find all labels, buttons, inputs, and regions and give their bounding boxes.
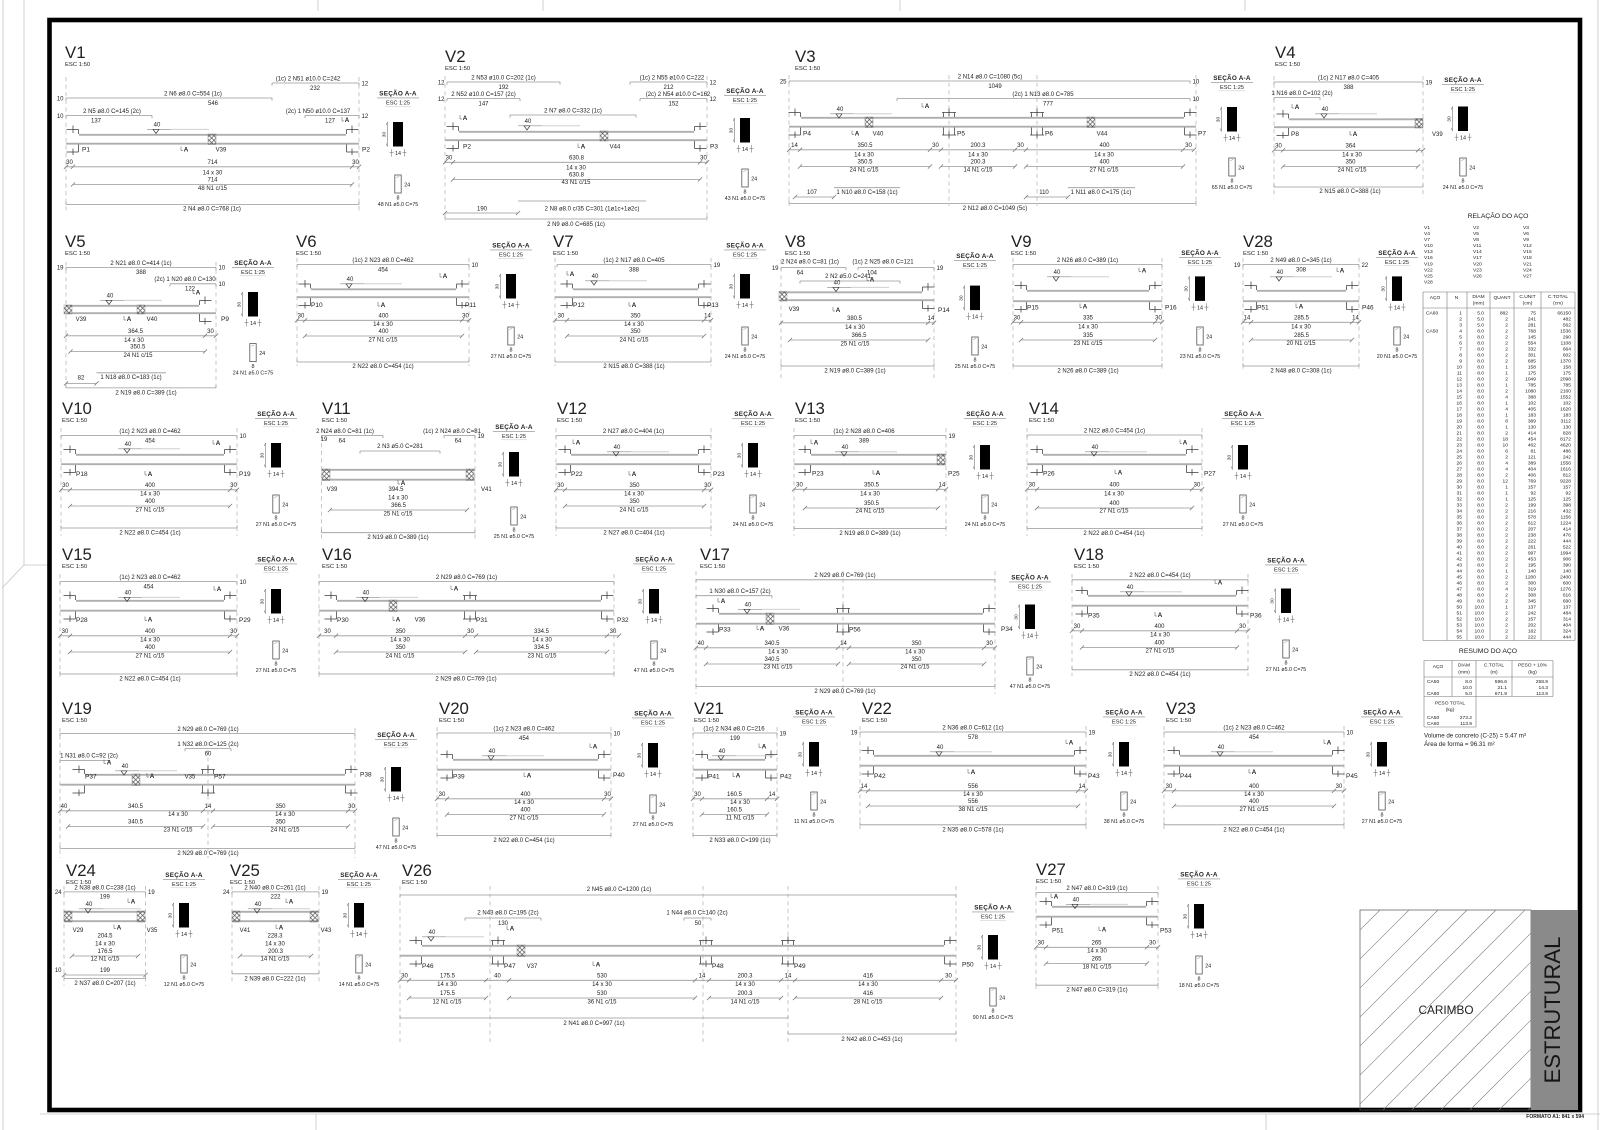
svg-text:14 x 30: 14 x 30	[437, 982, 457, 988]
svg-text:P5: P5	[957, 131, 965, 138]
svg-text:14 N1 ø5.0 C=75: 14 N1 ø5.0 C=75	[339, 982, 380, 988]
svg-text:P18: P18	[76, 471, 88, 478]
svg-text:160.5: 160.5	[727, 808, 743, 814]
svg-text:20: 20	[1457, 425, 1463, 431]
svg-text:A: A	[184, 147, 189, 154]
svg-text:714: 714	[207, 160, 218, 166]
svg-text:2 N29 ø8.0 C=769 (1c): 2 N29 ø8.0 C=769 (1c)	[435, 677, 496, 683]
svg-text:A: A	[762, 744, 767, 751]
svg-text:8: 8	[183, 976, 186, 982]
svg-text:324: 324	[1563, 629, 1571, 635]
svg-text:A: A	[1295, 104, 1300, 111]
svg-text:350: 350	[911, 641, 922, 647]
svg-text:228.3: 228.3	[267, 934, 283, 940]
svg-text:27 N1 ø5.0 C=75: 27 N1 ø5.0 C=75	[1362, 819, 1403, 825]
svg-text:CA50: CA50	[1427, 679, 1440, 685]
svg-text:334.5: 334.5	[534, 629, 550, 635]
svg-text:30: 30	[637, 753, 643, 759]
svg-text:43 N1 c/15: 43 N1 c/15	[561, 180, 591, 186]
svg-text:2: 2	[1505, 389, 1508, 395]
svg-text:(mm): (mm)	[1458, 670, 1470, 676]
svg-text:24: 24	[1205, 964, 1211, 970]
svg-text:4620: 4620	[1560, 443, 1571, 449]
svg-text:P39: P39	[453, 774, 465, 781]
svg-text:12: 12	[1503, 479, 1509, 485]
svg-text:(1c) 2 N23 ø8.0 C=462: (1c) 2 N23 ø8.0 C=462	[352, 258, 414, 264]
svg-text:2: 2	[1505, 335, 1508, 341]
svg-text:1: 1	[1459, 311, 1462, 317]
svg-text:41: 41	[1457, 551, 1463, 557]
svg-text:A: A	[1142, 268, 1147, 275]
svg-text:10: 10	[57, 114, 64, 120]
svg-text:2: 2	[1505, 473, 1508, 479]
svg-text:30: 30	[1275, 144, 1282, 150]
svg-text:24 N1 ø5.0 C=75: 24 N1 ø5.0 C=75	[233, 371, 274, 377]
svg-text:V14: V14	[1473, 249, 1482, 255]
svg-text:23 N1 c/15: 23 N1 c/15	[763, 665, 793, 671]
svg-text:QUANT: QUANT	[1493, 295, 1510, 301]
svg-text:30: 30	[729, 128, 735, 134]
svg-text:A: A	[527, 773, 532, 780]
svg-text:2 N35 ø8.0 C=578 (1c): 2 N35 ø8.0 C=578 (1c)	[942, 828, 1003, 834]
svg-text:P8: P8	[1291, 131, 1299, 138]
svg-text:414: 414	[1528, 431, 1536, 437]
svg-text:V22: V22	[1424, 267, 1433, 273]
svg-text:285.5: 285.5	[1294, 333, 1310, 339]
svg-text:158: 158	[1528, 365, 1536, 371]
svg-text:14: 14	[1079, 784, 1086, 790]
svg-text:232: 232	[310, 86, 321, 92]
svg-text:V37: V37	[527, 964, 538, 970]
svg-text:P46: P46	[422, 963, 434, 970]
svg-text:1536: 1536	[1560, 329, 1571, 335]
svg-text:400: 400	[1099, 160, 1110, 166]
svg-text:19: 19	[321, 437, 328, 443]
svg-text:14.3: 14.3	[1538, 685, 1548, 691]
svg-text:8: 8	[652, 816, 655, 822]
svg-text:578: 578	[968, 735, 979, 741]
svg-text:14: 14	[1027, 634, 1033, 640]
svg-text:SEÇÃO A-A: SEÇÃO A-A	[966, 409, 1004, 418]
svg-text:ESC 1:50: ESC 1:50	[322, 564, 348, 570]
svg-text:10: 10	[1457, 365, 1463, 371]
svg-text:30: 30	[1270, 598, 1276, 604]
svg-text:157: 157	[1563, 485, 1571, 491]
svg-text:V24: V24	[66, 861, 96, 880]
svg-text:24: 24	[1206, 335, 1212, 341]
svg-text:400: 400	[145, 483, 156, 489]
svg-text:P2: P2	[362, 147, 370, 154]
svg-text:10.0: 10.0	[1474, 605, 1484, 611]
svg-text:30: 30	[352, 160, 359, 166]
svg-text:366.5: 366.5	[391, 503, 407, 509]
svg-text:2098: 2098	[1560, 377, 1571, 383]
svg-text:ESC 1:25: ESC 1:25	[1187, 882, 1211, 888]
svg-text:ESC 1:50: ESC 1:50	[62, 718, 88, 724]
svg-text:SEÇÃO A-A: SEÇÃO A-A	[1213, 73, 1251, 82]
svg-text:CA50: CA50	[1426, 329, 1439, 335]
svg-text:14: 14	[650, 772, 656, 778]
svg-text:40: 40	[429, 930, 436, 936]
svg-text:ESC 1:25: ESC 1:25	[733, 253, 757, 259]
svg-text:V15: V15	[62, 545, 92, 564]
svg-text:A: A	[1102, 927, 1107, 934]
svg-text:A: A	[1252, 769, 1257, 776]
svg-text:24: 24	[1292, 648, 1298, 654]
svg-text:V23: V23	[1473, 267, 1482, 273]
svg-text:207: 207	[1528, 527, 1536, 533]
svg-text:8: 8	[1462, 179, 1465, 185]
svg-text:107: 107	[807, 190, 818, 196]
svg-text:A: A	[593, 744, 598, 751]
svg-text:147: 147	[478, 101, 489, 107]
svg-text:10.0: 10.0	[1462, 685, 1472, 691]
svg-text:10.0: 10.0	[1474, 611, 1484, 617]
svg-text:14: 14	[273, 472, 279, 478]
svg-text:SEÇÃO A-A: SEÇÃO A-A	[495, 422, 533, 431]
svg-text:8: 8	[395, 839, 398, 845]
svg-text:P4: P4	[803, 131, 811, 138]
svg-text:40: 40	[837, 107, 844, 113]
svg-text:P22: P22	[571, 471, 583, 478]
svg-text:602: 602	[1563, 353, 1571, 359]
svg-text:2 N14 ø8.0 C=1080 (5c): 2 N14 ø8.0 C=1080 (5c)	[958, 74, 1023, 80]
svg-text:ESC 1:25: ESC 1:25	[641, 721, 665, 727]
svg-text:664: 664	[1563, 347, 1571, 353]
svg-text:28 N1 c/15: 28 N1 c/15	[853, 1000, 883, 1006]
svg-text:1049: 1049	[988, 84, 1002, 90]
svg-text:2 N49 ø8.0 C=345 (1c): 2 N49 ø8.0 C=345 (1c)	[1270, 258, 1331, 264]
svg-text:24: 24	[190, 963, 196, 969]
svg-text:V35: V35	[185, 775, 196, 781]
svg-text:152: 152	[668, 101, 679, 107]
svg-text:400: 400	[145, 629, 156, 635]
svg-text:554: 554	[1528, 341, 1536, 347]
svg-text:P36: P36	[1250, 613, 1262, 620]
svg-text:40: 40	[1054, 270, 1061, 276]
svg-text:ESC 1:25: ESC 1:25	[502, 434, 526, 440]
svg-text:V1: V1	[65, 43, 86, 62]
svg-text:A: A	[345, 117, 350, 124]
svg-text:222: 222	[1528, 635, 1536, 641]
svg-text:2: 2	[1505, 341, 1508, 347]
svg-text:49: 49	[1457, 599, 1463, 605]
svg-text:24: 24	[751, 335, 757, 341]
svg-text:400: 400	[1249, 799, 1260, 805]
svg-text:1: 1	[1505, 425, 1508, 431]
svg-text:454: 454	[378, 267, 389, 273]
svg-text:V5: V5	[1473, 231, 1479, 237]
svg-text:82: 82	[78, 376, 85, 382]
svg-text:290: 290	[1563, 335, 1571, 341]
svg-text:P53: P53	[1160, 928, 1172, 935]
svg-text:A: A	[289, 899, 294, 906]
svg-text:14: 14	[1460, 136, 1466, 142]
svg-text:454: 454	[519, 736, 530, 742]
svg-text:14: 14	[356, 932, 362, 938]
svg-text:1616: 1616	[1560, 467, 1571, 473]
svg-text:45: 45	[1457, 575, 1463, 581]
svg-text:2: 2	[1505, 527, 1508, 533]
svg-text:769: 769	[1528, 479, 1536, 485]
svg-text:ESC 1:25: ESC 1:25	[1385, 260, 1409, 266]
svg-text:ESC 1:50: ESC 1:50	[694, 718, 720, 724]
svg-text:(1c) 2 N17 ø8.0 C=405: (1c) 2 N17 ø8.0 C=405	[1318, 75, 1380, 81]
svg-text:A: A	[1353, 131, 1358, 138]
svg-text:453: 453	[1528, 557, 1536, 563]
svg-text:2160: 2160	[1560, 389, 1571, 395]
svg-text:24: 24	[659, 803, 665, 809]
svg-text:V1: V1	[1424, 225, 1430, 231]
svg-text:10.0: 10.0	[1474, 617, 1484, 623]
svg-text:261: 261	[1528, 545, 1536, 551]
svg-text:8: 8	[1123, 813, 1126, 819]
svg-text:30: 30	[62, 483, 69, 489]
svg-text:2: 2	[1505, 599, 1508, 605]
svg-text:30: 30	[1239, 624, 1246, 630]
svg-text:24 N1 c/15: 24 N1 c/15	[123, 353, 153, 359]
svg-text:8: 8	[752, 516, 755, 522]
svg-text:2: 2	[1505, 377, 1508, 383]
svg-text:42: 42	[1457, 557, 1463, 563]
svg-text:8.0: 8.0	[1477, 521, 1484, 527]
svg-text:137: 137	[1563, 605, 1571, 611]
svg-text:1 N10 ø8.0 C=158 (1c): 1 N10 ø8.0 C=158 (1c)	[836, 190, 897, 196]
svg-text:40: 40	[494, 974, 501, 980]
svg-text:10: 10	[219, 266, 226, 272]
svg-text:CA60: CA60	[1427, 721, 1440, 727]
svg-text:30: 30	[1166, 784, 1173, 790]
svg-text:P34: P34	[1001, 626, 1013, 633]
svg-text:ESC 1:25: ESC 1:25	[347, 882, 371, 888]
svg-text:36 N1 c/15: 36 N1 c/15	[587, 1000, 617, 1006]
svg-text:30: 30	[796, 483, 803, 489]
svg-text:SEÇÃO A-A: SEÇÃO A-A	[1267, 556, 1305, 565]
svg-text:V13: V13	[1424, 249, 1433, 255]
svg-text:A: A	[463, 115, 468, 122]
svg-text:10: 10	[472, 263, 479, 269]
svg-text:SEÇÃO A-A: SEÇÃO A-A	[165, 870, 203, 879]
svg-text:2 N26 ø8.0 C=389 (1c): 2 N26 ø8.0 C=389 (1c)	[1057, 258, 1118, 264]
svg-text:CA60: CA60	[1426, 311, 1439, 317]
svg-text:2 N19 ø8.0 C=389 (1c): 2 N19 ø8.0 C=389 (1c)	[839, 531, 900, 537]
svg-text:ESC 1:25: ESC 1:25	[384, 742, 408, 748]
svg-text:V14: V14	[1029, 399, 1059, 418]
svg-text:A: A	[131, 899, 136, 906]
svg-text:(2c) 2 N54 ø10.0 C=162: (2c) 2 N54 ø10.0 C=162	[646, 92, 711, 98]
svg-text:10.0: 10.0	[1474, 635, 1484, 641]
svg-text:50: 50	[1457, 605, 1463, 611]
svg-text:19: 19	[772, 266, 779, 272]
svg-text:24: 24	[223, 890, 230, 896]
svg-text:12 N1 ø5.0 C=75: 12 N1 ø5.0 C=75	[164, 982, 205, 988]
svg-text:8.0: 8.0	[1477, 359, 1484, 365]
svg-text:P3: P3	[710, 144, 718, 151]
svg-text:14 x 30: 14 x 30	[845, 325, 865, 331]
svg-text:630.8: 630.8	[569, 156, 585, 162]
svg-text:2: 2	[1505, 353, 1508, 359]
svg-text:P42: P42	[874, 773, 886, 780]
svg-text:ESC 1:25: ESC 1:25	[172, 882, 196, 888]
svg-text:ESC 1:50: ESC 1:50	[65, 62, 91, 68]
svg-text:30: 30	[604, 792, 611, 798]
svg-text:SEÇÃO A-A: SEÇÃO A-A	[340, 870, 378, 879]
svg-text:14: 14	[651, 618, 657, 624]
svg-text:8: 8	[1231, 179, 1234, 185]
svg-text:14: 14	[840, 641, 847, 647]
svg-text:30: 30	[638, 599, 644, 605]
svg-text:23 N1 ø5.0 C=75: 23 N1 ø5.0 C=75	[1180, 354, 1221, 360]
svg-text:40: 40	[1277, 270, 1284, 276]
svg-text:12: 12	[362, 81, 369, 87]
svg-text:P23: P23	[812, 471, 824, 478]
svg-text:2 N40 ø8.0 C=261 (1c): 2 N40 ø8.0 C=261 (1c)	[244, 885, 305, 891]
svg-text:10: 10	[1503, 443, 1509, 449]
svg-text:14 x 30: 14 x 30	[1150, 633, 1170, 639]
svg-text:30: 30	[700, 156, 707, 162]
svg-text:8.0: 8.0	[1477, 545, 1484, 551]
svg-text:400: 400	[145, 645, 156, 651]
svg-text:314: 314	[1563, 617, 1571, 623]
svg-text:30: 30	[1038, 941, 1045, 947]
svg-text:24 N1 ø5.0 C=75: 24 N1 ø5.0 C=75	[1443, 185, 1484, 191]
svg-text:8.0: 8.0	[1477, 563, 1484, 569]
svg-text:8: 8	[1285, 661, 1288, 667]
svg-text:23 N1 c/15: 23 N1 c/15	[163, 828, 193, 834]
svg-text:5: 5	[1459, 335, 1462, 341]
svg-text:27 N1 c/15: 27 N1 c/15	[1089, 168, 1119, 174]
svg-text:ESTRUTURAL: ESTRUTURAL	[1540, 937, 1565, 1084]
svg-text:(1c) 2 N28 ø8.0 C=406: (1c) 2 N28 ø8.0 C=406	[833, 429, 895, 435]
svg-text:1108: 1108	[1560, 341, 1571, 347]
svg-text:24 N1 c/15: 24 N1 c/15	[1337, 168, 1367, 174]
svg-text:8.0: 8.0	[1477, 473, 1484, 479]
svg-text:1 N11 ø8.0 C=175 (1c): 1 N11 ø8.0 C=175 (1c)	[1071, 190, 1132, 196]
svg-text:A: A	[279, 925, 284, 932]
svg-text:27 N1 c/15: 27 N1 c/15	[1239, 807, 1269, 813]
svg-text:24: 24	[751, 177, 757, 183]
svg-text:SEÇÃO A-A: SEÇÃO A-A	[734, 409, 772, 418]
svg-text:202: 202	[1528, 623, 1536, 629]
svg-text:2: 2	[1505, 329, 1508, 335]
svg-text:14 x 30: 14 x 30	[388, 496, 408, 502]
svg-text:2 N38 ø8.0 C=238 (1c): 2 N38 ø8.0 C=238 (1c)	[74, 885, 135, 891]
svg-text:2: 2	[1505, 557, 1508, 563]
svg-text:14 x 30: 14 x 30	[265, 942, 285, 948]
svg-text:V39: V39	[327, 487, 338, 493]
svg-text:335: 335	[1083, 316, 1094, 322]
svg-text:48 N1 c/15: 48 N1 c/15	[198, 186, 228, 192]
svg-text:P12: P12	[573, 302, 585, 309]
svg-text:ESC 1:25: ESC 1:25	[733, 98, 757, 104]
svg-text:30: 30	[1029, 483, 1036, 489]
svg-text:ESC 1:25: ESC 1:25	[264, 421, 288, 427]
svg-text:222: 222	[270, 895, 281, 901]
svg-text:AÇO: AÇO	[1433, 664, 1444, 670]
svg-text:28: 28	[1457, 473, 1463, 479]
svg-text:462: 462	[1528, 443, 1536, 449]
svg-text:14: 14	[990, 964, 996, 970]
svg-text:8: 8	[513, 528, 516, 534]
svg-text:10.0: 10.0	[1474, 629, 1484, 635]
svg-text:SEÇÃO A-A: SEÇÃO A-A	[1224, 409, 1262, 418]
svg-text:SEÇÃO A-A: SEÇÃO A-A	[492, 241, 530, 250]
svg-text:V6: V6	[296, 232, 317, 251]
svg-text:8.0: 8.0	[1477, 461, 1484, 467]
svg-text:SEÇÃO A-A: SEÇÃO A-A	[795, 708, 833, 717]
svg-text:25: 25	[1457, 455, 1463, 461]
svg-text:P56: P56	[849, 627, 861, 634]
svg-text:V40: V40	[147, 317, 158, 323]
svg-text:1 N44 ø8.0 C=140 (2c): 1 N44 ø8.0 C=140 (2c)	[666, 911, 727, 917]
svg-text:30: 30	[1216, 117, 1222, 123]
svg-text:30: 30	[798, 752, 804, 758]
svg-text:454: 454	[1249, 735, 1260, 741]
svg-text:33: 33	[1457, 503, 1463, 509]
svg-text:2 N24 ø8.0 C=81 (1c): 2 N24 ø8.0 C=81 (1c)	[781, 260, 839, 266]
svg-text:40: 40	[719, 749, 726, 755]
svg-text:27 N1 c/15: 27 N1 c/15	[368, 338, 398, 344]
svg-text:ESC 1:25: ESC 1:25	[1231, 421, 1255, 427]
svg-text:11 N1 c/15: 11 N1 c/15	[726, 816, 755, 822]
svg-text:345: 345	[1528, 599, 1536, 605]
svg-text:1: 1	[1505, 371, 1508, 377]
svg-text:2 N22 ø8.0 C=454 (1c): 2 N22 ø8.0 C=454 (1c)	[1129, 672, 1190, 678]
svg-text:2: 2	[1505, 575, 1508, 581]
svg-text:12: 12	[710, 80, 717, 86]
svg-text:V43: V43	[321, 928, 332, 934]
svg-text:4: 4	[1505, 395, 1508, 401]
svg-text:14: 14	[205, 804, 212, 810]
svg-text:P49: P49	[794, 963, 806, 970]
svg-text:2 N48 ø8.0 C=308 (1c): 2 N48 ø8.0 C=308 (1c)	[1270, 368, 1331, 374]
svg-text:V21: V21	[1523, 261, 1532, 267]
svg-text:685: 685	[1528, 359, 1536, 365]
svg-text:125: 125	[1563, 497, 1571, 503]
svg-text:24: 24	[282, 503, 288, 509]
svg-text:5.0: 5.0	[1477, 311, 1484, 317]
svg-text:2 N9 ø8.0 C=685 (1c): 2 N9 ø8.0 C=685 (1c)	[547, 222, 605, 228]
svg-text:ESC 1:25: ESC 1:25	[973, 421, 997, 427]
svg-text:616: 616	[1563, 593, 1571, 599]
svg-text:48: 48	[1457, 593, 1463, 599]
svg-text:30: 30	[737, 453, 743, 459]
svg-text:ESC 1:50: ESC 1:50	[1074, 564, 1100, 570]
svg-text:8.0: 8.0	[1477, 329, 1484, 335]
svg-text:2 N22 ø8.0 C=454 (1c): 2 N22 ø8.0 C=454 (1c)	[352, 364, 413, 370]
svg-text:30: 30	[557, 483, 564, 489]
svg-text:V11: V11	[1473, 243, 1482, 249]
svg-text:350: 350	[630, 314, 641, 320]
svg-text:405: 405	[1528, 407, 1536, 413]
svg-text:122: 122	[185, 287, 196, 293]
svg-text:24: 24	[1130, 800, 1136, 806]
svg-text:10.0: 10.0	[1474, 623, 1484, 629]
svg-text:10: 10	[57, 96, 64, 102]
svg-text:(1c) 2 N51 ø10.0 C=242: (1c) 2 N51 ø10.0 C=242	[276, 76, 341, 82]
svg-text:265: 265	[1091, 957, 1102, 963]
svg-text:14 x 30: 14 x 30	[124, 338, 144, 344]
svg-text:199: 199	[730, 736, 741, 742]
svg-text:319: 319	[1528, 587, 1536, 593]
svg-text:P15: P15	[1027, 305, 1039, 312]
svg-text:A: A	[1158, 612, 1163, 619]
svg-text:V25: V25	[1424, 273, 1433, 279]
svg-text:388: 388	[629, 267, 640, 273]
svg-text:14 x 30: 14 x 30	[624, 492, 644, 498]
svg-text:14 x 30: 14 x 30	[373, 322, 393, 328]
svg-text:14 N1 c/15: 14 N1 c/15	[260, 957, 290, 963]
